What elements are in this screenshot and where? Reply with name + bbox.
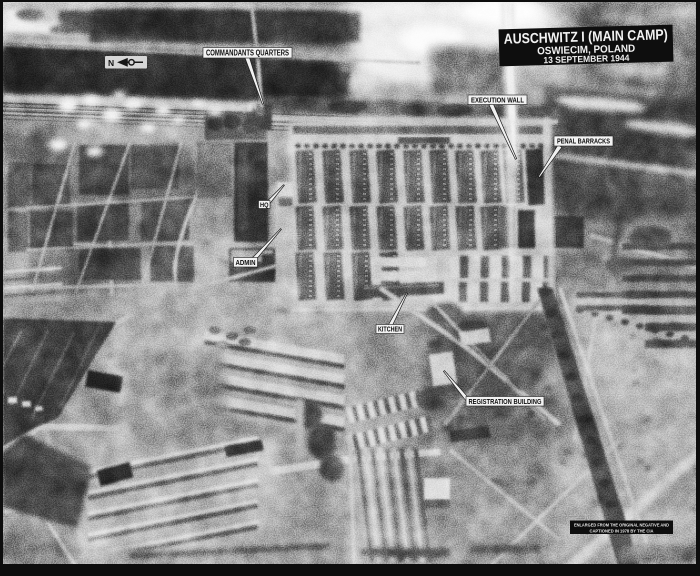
svg-text:EXECUTION WALL: EXECUTION WALL [471, 96, 524, 105]
svg-text:COMMANDANTS QUARTERS: COMMANDANTS QUARTERS [206, 49, 289, 58]
svg-text:HQ: HQ [260, 202, 269, 209]
svg-text:ADMIN: ADMIN [236, 258, 256, 267]
svg-text:KITCHEN: KITCHEN [378, 325, 402, 334]
svg-text:ENLARGED FROM THE ORIGINAL NEG: ENLARGED FROM THE ORIGINAL NEGATIVE AND [574, 523, 669, 529]
svg-text:PENAL BARRACKS: PENAL BARRACKS [557, 137, 610, 146]
svg-text:REGISTRATION BUILDING: REGISTRATION BUILDING [469, 397, 542, 406]
svg-text:N: N [108, 58, 114, 68]
svg-text:CAPTIONED IN 1978 BY THE CIA: CAPTIONED IN 1978 BY THE CIA [590, 528, 654, 534]
